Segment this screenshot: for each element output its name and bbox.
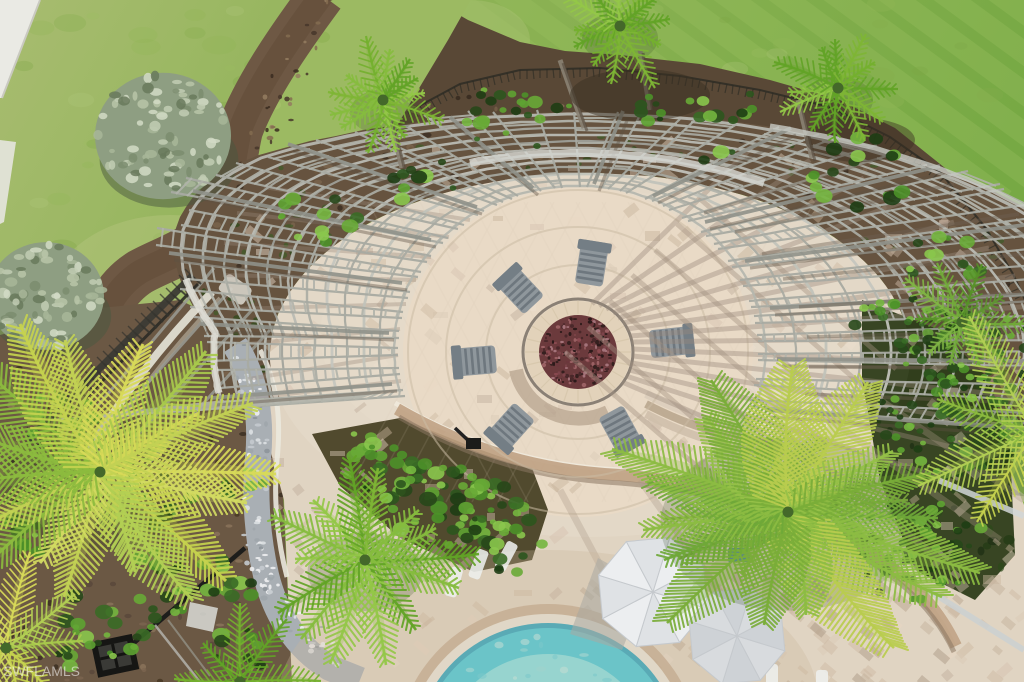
svg-text:SWFLAMLS: SWFLAMLS — [3, 663, 80, 679]
